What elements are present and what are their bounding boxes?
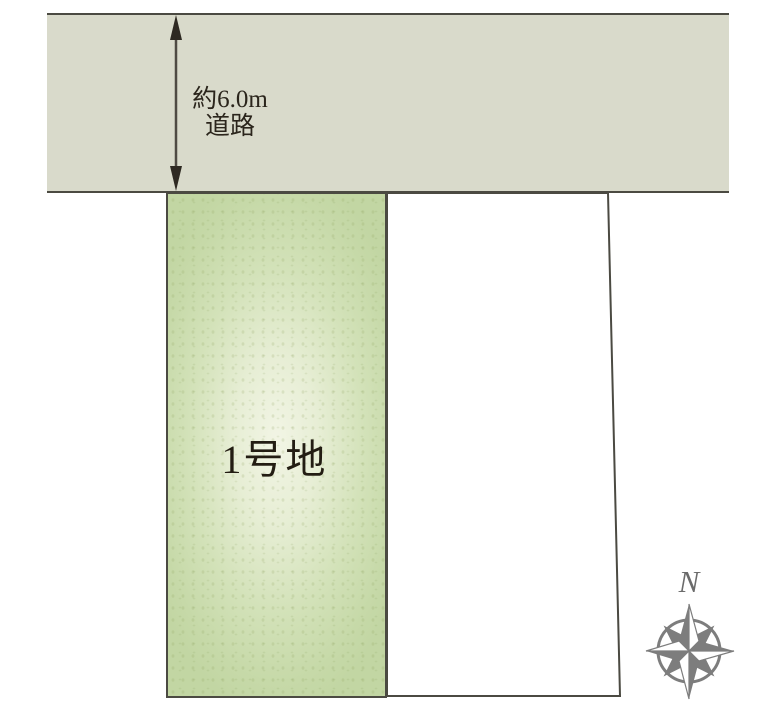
road-name: 道路	[184, 113, 276, 140]
compass-north-label: N	[637, 566, 741, 598]
lot-1-area: 1号地	[166, 192, 387, 698]
road-width-label: 約6.0m 道路	[184, 86, 276, 140]
lot-1-label: 1号地	[221, 427, 327, 485]
road-width-value: 約6.0m	[184, 86, 276, 113]
compass: N	[637, 566, 741, 706]
lot-2-outline	[387, 193, 620, 696]
plot-plan: 1号地 約6.0m 道路 N	[0, 0, 780, 718]
compass-rose-icon	[639, 601, 739, 701]
road-area	[47, 13, 729, 193]
